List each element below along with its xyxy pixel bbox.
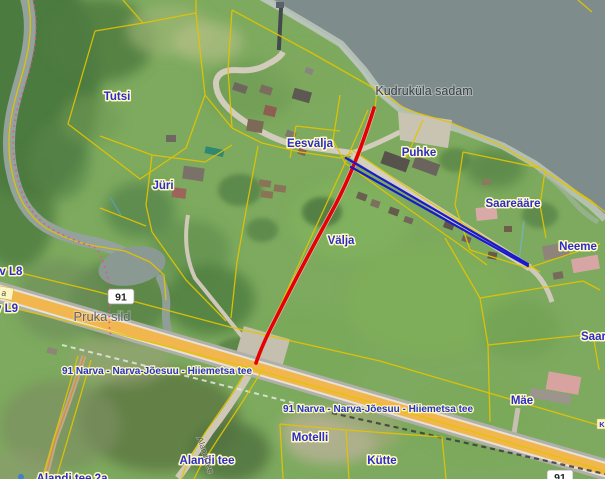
place-label-kudrukula-sadam: Kudruküla sadam (375, 84, 472, 98)
place-label-eesvalja: Eesvälja (287, 138, 334, 150)
svg-text:K: K (599, 420, 605, 429)
highway-label-east: 91 Narva - Narva-Jõesuu - Hiiemetsa tee (283, 404, 474, 415)
place-label-neeme: Neeme (559, 241, 597, 253)
bridge-label-pruka-sild: Pruka sild (73, 309, 130, 324)
place-label-motelli: Motelli (292, 432, 328, 444)
place-label-v-l9: v L9 (0, 303, 18, 315)
stop-badge-a: a (0, 286, 14, 301)
highway-label-west: 91 Narva - Narva-Jõesuu - Hiiemetsa tee (62, 366, 253, 377)
clipped-badge-k: K (597, 419, 605, 429)
place-label-alandi-tee-2a: Alandi tee 2a (37, 473, 109, 479)
map-canvas[interactable]: Tutsi Kudruküla sadam Eesvälja Puhke Jür… (0, 0, 605, 479)
route-badge-91: 91 (108, 289, 134, 304)
route-badge-91-south: 91 (547, 470, 573, 479)
place-label-saare: Saare (581, 331, 605, 343)
aerial-map-svg: Tutsi Kudruküla sadam Eesvälja Puhke Jür… (0, 0, 605, 479)
svg-text:91: 91 (115, 292, 127, 304)
svg-text:91: 91 (554, 472, 566, 479)
place-label-mae: Mäe (511, 395, 533, 407)
place-label-puhke: Puhke (402, 147, 437, 159)
place-label-jyri: Jüri (152, 180, 173, 192)
place-label-valja: Välja (328, 235, 355, 247)
place-label-tutsi: Tutsi (104, 91, 131, 103)
place-label-saareaare: Saareääre (486, 198, 541, 210)
place-label-kytte: Kütte (367, 455, 396, 467)
place-label-av-l8: av L8 (0, 266, 23, 278)
